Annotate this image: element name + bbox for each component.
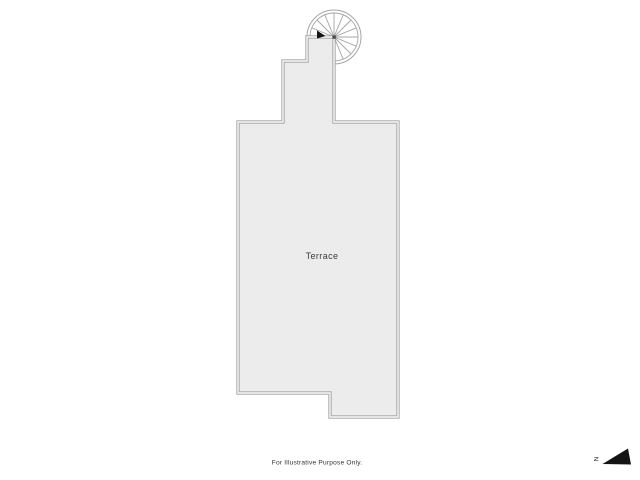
stair-newel-post: [332, 35, 335, 38]
floorplan-page: Terrace For Illustrative Purpose Only. N: [0, 0, 640, 480]
disclaimer-text: For Illustrative Purpose Only.: [272, 460, 363, 467]
terrace-room-shape: [238, 37, 398, 417]
north-arrow-triangle: [603, 449, 632, 465]
north-arrow-label: N: [592, 457, 599, 461]
room-label: Terrace: [306, 251, 339, 261]
north-arrow-icon: N: [592, 449, 631, 465]
floorplan-drawing: Terrace For Illustrative Purpose Only. N: [0, 0, 640, 480]
